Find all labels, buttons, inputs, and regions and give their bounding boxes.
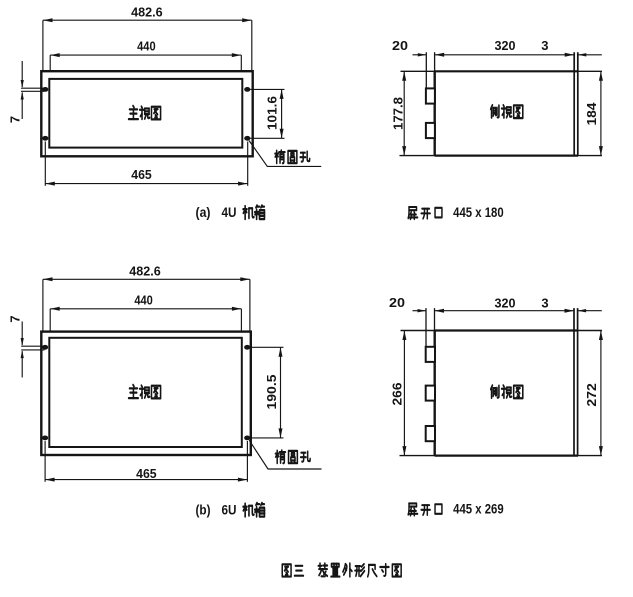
svg-text:20: 20: [389, 295, 405, 310]
svg-text:3: 3: [541, 296, 548, 311]
svg-text:(a): (a): [196, 205, 211, 220]
svg-text:272: 272: [584, 383, 599, 407]
svg-text:440: 440: [137, 39, 156, 54]
svg-text:3: 3: [541, 38, 548, 53]
svg-text:465: 465: [131, 167, 152, 182]
svg-text:(b): (b): [196, 503, 211, 518]
svg-text:101.6: 101.6: [264, 96, 279, 130]
svg-text:320: 320: [495, 296, 516, 311]
svg-text:465: 465: [136, 466, 157, 481]
svg-text:482.6: 482.6: [131, 5, 163, 20]
svg-text:4U: 4U: [222, 205, 237, 220]
svg-text:7: 7: [7, 315, 22, 322]
svg-text:482.6: 482.6: [129, 264, 161, 279]
svg-text:7: 7: [7, 116, 22, 123]
svg-text:177.8: 177.8: [391, 97, 406, 130]
svg-text:445 x 269: 445 x 269: [453, 502, 504, 517]
svg-text:440: 440: [134, 292, 153, 307]
svg-text:6U: 6U: [222, 503, 237, 518]
svg-text:445 x 180: 445 x 180: [453, 205, 504, 220]
svg-text:184: 184: [584, 102, 599, 126]
svg-text:190.5: 190.5: [264, 375, 279, 410]
svg-text:320: 320: [495, 38, 516, 53]
svg-text:266: 266: [390, 383, 405, 406]
svg-text:20: 20: [392, 38, 408, 53]
